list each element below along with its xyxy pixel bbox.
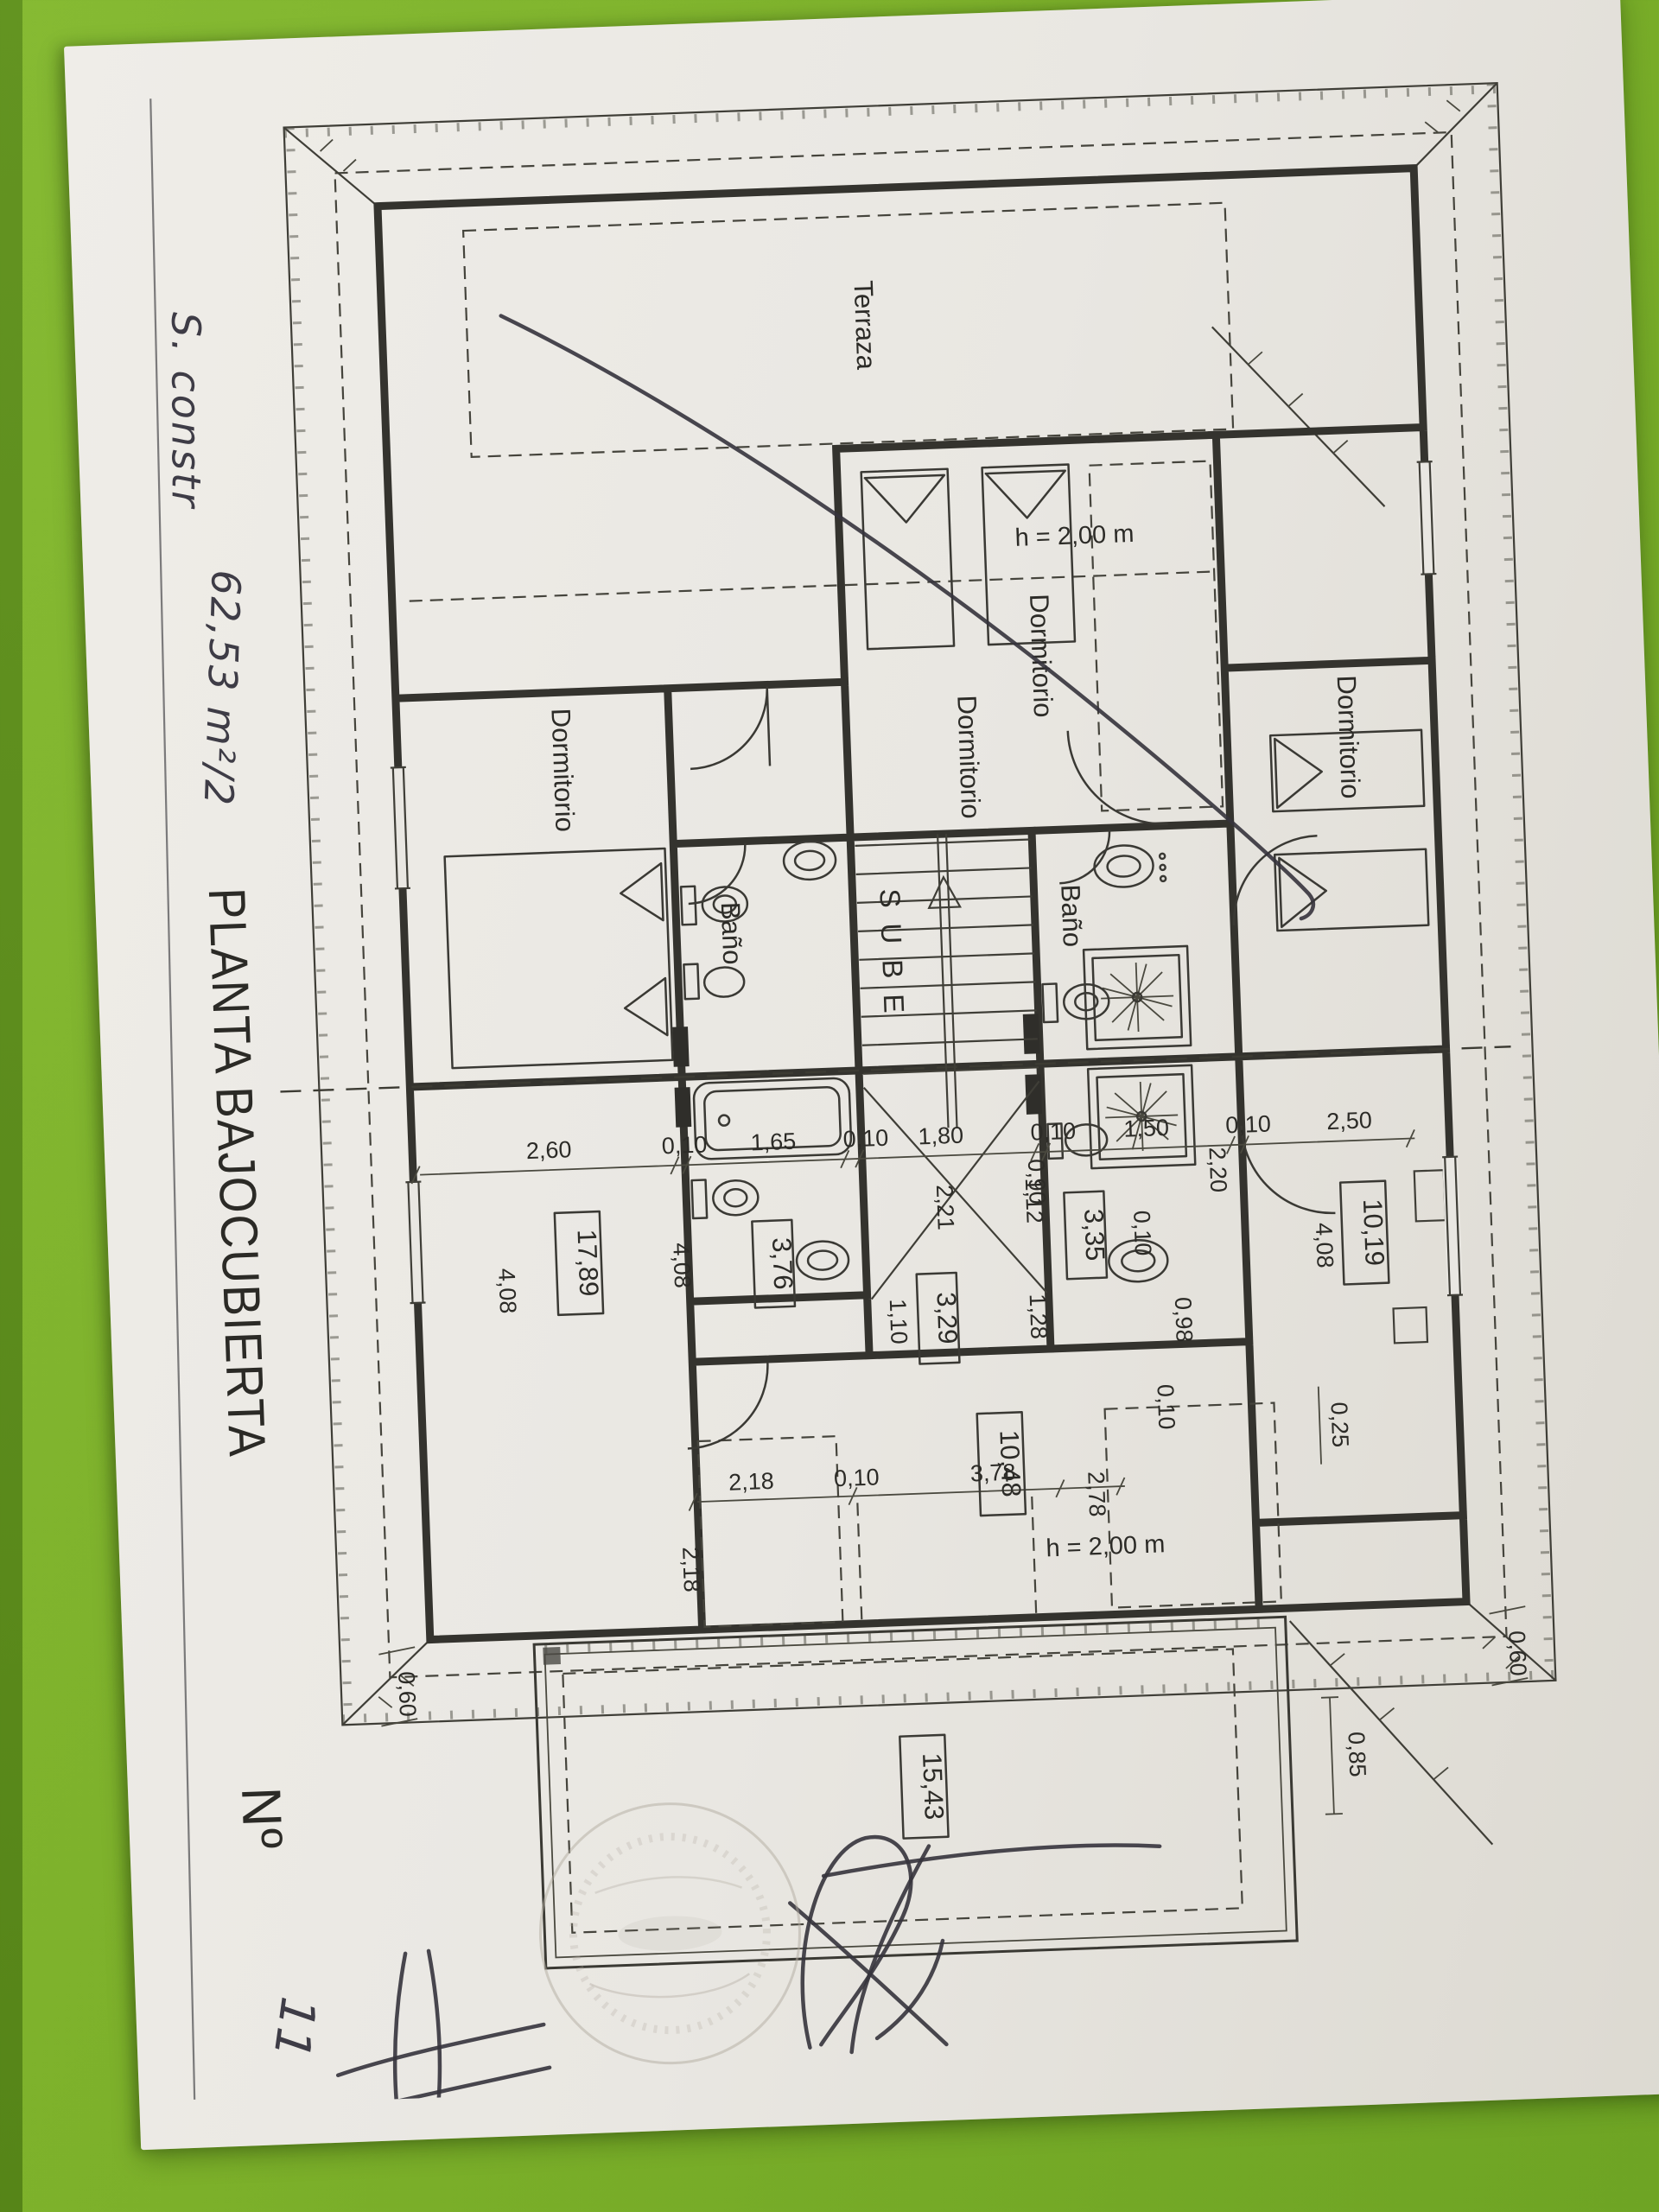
- sheet-number-prefix: Nº: [230, 1786, 295, 1852]
- room-label-dormitorio-middle: Dormitorio: [951, 695, 986, 819]
- dim-2-60: 2,60: [525, 1136, 572, 1164]
- bidet-icon: [683, 963, 744, 1000]
- lower-terrace-block: [534, 1617, 1297, 1968]
- dim-1-50: 1,50: [1123, 1115, 1170, 1142]
- room-label-dormitorio-right: Dormitorio: [1332, 675, 1366, 799]
- area-box-left-hall: 3,29: [931, 1292, 963, 1345]
- windows: [380, 461, 1463, 1333]
- dim-0-10: 0,10: [1030, 1118, 1077, 1146]
- dim-2-18: 2,18: [677, 1547, 705, 1593]
- handwritten-area-note-2: 62,53 m²/2: [195, 569, 250, 808]
- dim-1-28: 1,28: [1025, 1294, 1052, 1340]
- pen-stroke-diagonal: [501, 287, 1314, 947]
- window-icon: [1442, 1157, 1463, 1296]
- dim-3-78: 3,78: [969, 1459, 1016, 1487]
- dim-2-21: 2,21: [931, 1185, 959, 1231]
- sink-icon: [796, 1241, 849, 1281]
- area-box-left-room: 17,89: [572, 1229, 605, 1297]
- dim-4-08: 4,08: [493, 1268, 521, 1314]
- roof-outline: [284, 83, 1562, 1886]
- dim-2-18: 2,18: [728, 1468, 775, 1496]
- dim-0-10: 0,10: [661, 1131, 708, 1159]
- sink-icon: [783, 841, 836, 880]
- window-icon: [391, 767, 410, 889]
- dim-0-10: 0,10: [833, 1464, 880, 1491]
- dim-1-80: 1,80: [918, 1122, 964, 1150]
- handwritten-area-note-1: S. constr: [162, 312, 209, 510]
- area-box-bottom-terrace: 15,43: [917, 1752, 950, 1821]
- window-icon: [405, 1182, 425, 1304]
- dim-0-10: 0,10: [1128, 1210, 1156, 1256]
- sink-icon: [1094, 844, 1166, 888]
- area-box-right-hall: 3,35: [1078, 1208, 1110, 1262]
- signature-left: [334, 1947, 554, 2107]
- wall-pillar: [1414, 1170, 1446, 1221]
- handwritten-sheet-number: 11: [262, 1993, 326, 2063]
- room-label-dormitorio-left: Dormitorio: [545, 708, 580, 832]
- room-label-bano-right: Baño: [1055, 884, 1088, 948]
- area-box-right-room: 10,19: [1357, 1198, 1390, 1267]
- room-label-terraza: Terraza: [849, 280, 882, 371]
- dim-2-20: 2,20: [1205, 1147, 1232, 1193]
- single-bed-icon: [861, 469, 954, 650]
- wall-pillar: [1394, 1307, 1427, 1343]
- door-arc: [688, 687, 770, 769]
- building-walls: [378, 168, 1466, 1640]
- dim-0-85: 0,85: [1343, 1732, 1370, 1778]
- dim-2-50: 2,50: [1326, 1107, 1373, 1135]
- stairs-label-sube: SUBE: [874, 888, 911, 1029]
- dim-2-78: 2,78: [1083, 1471, 1110, 1517]
- shower-icon: [1084, 946, 1191, 1049]
- toilet-icon: [1043, 982, 1110, 1022]
- height-note-bottom: h = 2,00 m: [1046, 1530, 1166, 1562]
- room-labels: Terraza Dormitorio Dormitorio Dormitorio…: [531, 263, 1394, 1580]
- dim-0-10: 0,10: [1225, 1110, 1272, 1138]
- background-green-edge: [0, 0, 22, 2212]
- floor-plan-drawing: Terraza Dormitorio Dormitorio Dormitorio…: [114, 41, 1638, 2107]
- dim-0-98: 0,98: [1170, 1297, 1198, 1344]
- terrace-corner-mark: [543, 1647, 561, 1665]
- signature-right: [788, 1827, 1167, 2054]
- dim-4-08: 4,08: [1311, 1222, 1338, 1268]
- door-arc: [1068, 728, 1168, 828]
- window-icon: [1417, 461, 1437, 575]
- single-bed-icon: [1274, 849, 1428, 931]
- dim-0-60: 0,60: [1503, 1630, 1531, 1677]
- handwritten-annotations: S. constr 62,53 m²/2 11: [156, 270, 1359, 2107]
- dim-1-10: 1,10: [885, 1299, 912, 1345]
- sheet-title: PLANTA BAJOCUBIERTA: [198, 887, 276, 1459]
- dim-0-10: 0,10: [1153, 1383, 1180, 1430]
- dim-0-60: 0,60: [393, 1671, 421, 1718]
- area-box-left-bath: 3,76: [766, 1237, 798, 1291]
- height-note-top: h = 2,00 m: [1014, 520, 1135, 552]
- plan-sheet-paper: Terraza Dormitorio Dormitorio Dormitorio…: [64, 0, 1659, 2150]
- dim-0-25: 0,25: [1325, 1402, 1353, 1448]
- dim-0-10: 0,10: [842, 1125, 889, 1153]
- dim-4-08: 4,08: [668, 1243, 696, 1289]
- dim-1-65: 1,65: [750, 1128, 797, 1156]
- title-block: PLANTA BAJOCUBIERTA Nº: [197, 887, 295, 1852]
- room-label-bano-left: Baño: [715, 901, 748, 965]
- official-stamp: [536, 1799, 804, 2068]
- dim-1-12: 1,12: [1020, 1178, 1048, 1224]
- double-bed-icon: [445, 849, 673, 1068]
- door-arc: [1058, 829, 1111, 883]
- toilet-icon: [692, 1178, 760, 1218]
- stairs-arrow-icon: [928, 877, 960, 908]
- beds: [431, 452, 1433, 1068]
